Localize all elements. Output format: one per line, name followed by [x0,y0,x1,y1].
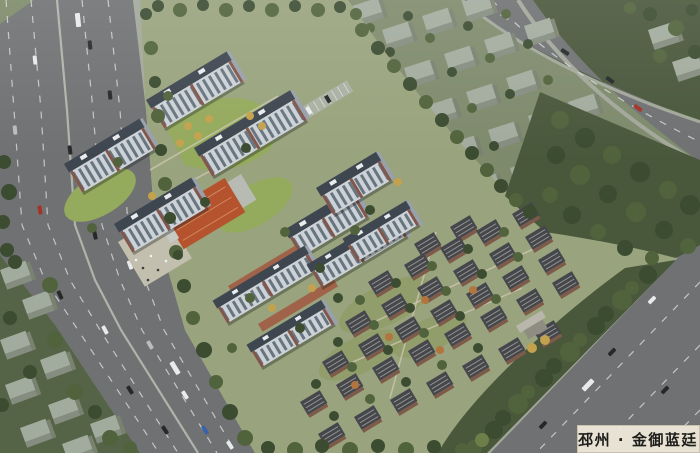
project-label: 邳州 · 金御蓝廷 [577,425,700,453]
aerial-masterplan-render: 邳州 · 金御蓝廷 [0,0,700,453]
render-canvas: 邳州 · 金御蓝廷 [0,0,700,453]
light-haze-overlay [0,0,700,453]
project-label-text: 邳州 · 金御蓝廷 [577,431,698,449]
